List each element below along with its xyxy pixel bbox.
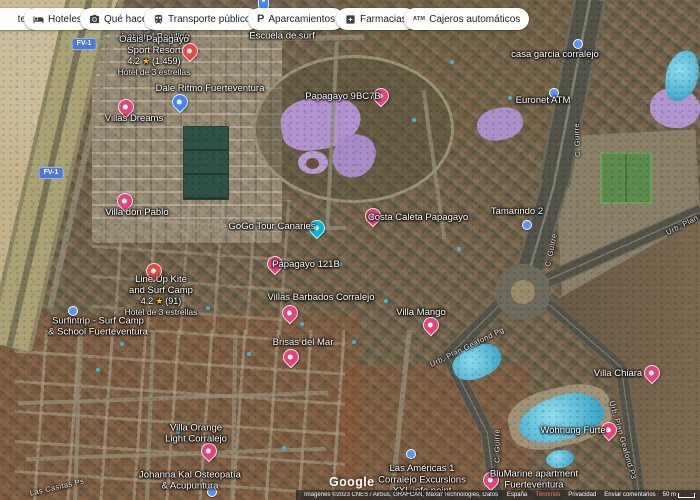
poi-name-line: Dale Ritmo Fuerteventura: [156, 84, 265, 95]
pharmacy-icon: [345, 14, 356, 25]
poi-name-line: casa garcia corralejo: [511, 50, 599, 61]
poi-name-line: Villa Orange: [165, 424, 227, 435]
footer-links: EspañaTérminosPrivacidadEnviar comentari…: [507, 492, 656, 498]
chip-label: Transporte público: [168, 14, 250, 25]
poi-label-villa-orange[interactable]: Villa OrangeLight Corralejo: [165, 424, 227, 445]
poi-name-line: Corralejo Excursions: [378, 476, 466, 487]
atm-icon: ATM: [413, 16, 425, 22]
footer-link-2[interactable]: Privacidad: [568, 492, 596, 498]
poi-pin-villas-barbados[interactable]: [279, 302, 302, 325]
road-label-1: C. Guirre: [543, 232, 559, 267]
poi-label-villa-chiara[interactable]: Villa Chiara: [594, 369, 642, 380]
poi-name-line: Escuela de surf: [249, 31, 314, 42]
camera-icon: [89, 14, 100, 25]
map-attribution: Imágenes ©2023 CNES / Airbus, GRAFCAN, M…: [304, 492, 500, 498]
poi-label-euronet-atm[interactable]: Euronet ATM: [516, 96, 571, 107]
chip-label: Farmacias: [360, 14, 407, 25]
poi-rating: 4.2★(91): [125, 296, 198, 307]
poi-label-villa-mango[interactable]: Villa Mango: [396, 308, 445, 319]
poi-pin-las-americas-1[interactable]: [406, 449, 416, 459]
road-label-4: Urb. Plan Geafond P3: [607, 400, 638, 481]
poi-name-line: Light Corralejo: [165, 434, 227, 445]
poi-name-line: Line Up Kite: [125, 275, 198, 286]
poi-label-oasis-papagayo[interactable]: Oasis PapagayoSport Resort4.2★(1.459)Hot…: [118, 35, 191, 77]
poi-name-line: BluMarine apartment: [490, 470, 578, 481]
map-canvas[interactable]: FV-1FV-1C. GuirreC. GuirreC. GuirreUrb. …: [0, 0, 700, 500]
road-label-2: C. Guirre: [493, 429, 502, 463]
poi-pin-casa-garcia[interactable]: [573, 39, 583, 49]
poi-name-line: Papagayo 121B: [272, 260, 340, 271]
poi-label-villa-don-pablo[interactable]: Villa don Pablo: [105, 208, 168, 219]
poi-label-papagayo-121b[interactable]: Papagayo 121B: [272, 260, 340, 271]
poi-name-line: GoGo Tour Canaries: [229, 222, 316, 233]
poi-label-costa-caleta[interactable]: Costa Caleta Papagayo: [368, 213, 468, 224]
poi-pin-brisas-del-mar[interactable]: [280, 346, 303, 369]
poi-name-line: Villa don Pablo: [105, 208, 168, 219]
poi-label-line-up-kite[interactable]: Line Up Kiteand Surf Camp4.2★(91)Hotel d…: [125, 275, 198, 317]
poi-name-line: Papagayo 9BC7B: [305, 92, 381, 103]
star-icon: ★: [140, 56, 152, 66]
chip-label: Hoteles: [48, 14, 82, 25]
poi-name-line: Villas Barbados Corralejo: [267, 293, 374, 304]
poi-pin-tamarindo-2[interactable]: [522, 220, 532, 230]
map-scale: 50 m: [663, 492, 695, 498]
attribution-bar: Imágenes ©2023 CNES / Airbus, GRAFCAN, M…: [296, 490, 700, 500]
poi-pin-surfintrip[interactable]: [68, 306, 78, 316]
poi-name-line: Costa Caleta Papagayo: [368, 213, 468, 224]
poi-label-dale-ritmo[interactable]: Dale Ritmo Fuerteventura: [156, 84, 265, 95]
road-label-0: C. Guirre: [572, 123, 583, 157]
poi-label-casa-garcia[interactable]: casa garcia corralejo: [511, 50, 599, 61]
poi-name-line: Villas Dreams: [105, 114, 163, 125]
poi-name-line: & School Fuerteventura: [48, 327, 148, 338]
route-shield-fv1: FV-1: [39, 167, 64, 179]
poi-name-line: Wohnung Fürte: [540, 426, 605, 437]
map-labels-layer: FV-1FV-1C. GuirreC. GuirreC. GuirreUrb. …: [0, 0, 700, 500]
poi-label-villas-dreams[interactable]: Villas Dreams: [105, 114, 163, 125]
chip-aparcamientos[interactable]: PAparcamientos: [248, 8, 344, 30]
chip-cajeros-automaticos[interactable]: ATMCajeros automáticos: [404, 8, 529, 30]
poi-label-blumarine[interactable]: BluMarine apartmentFuerteventura: [490, 470, 578, 491]
poi-name-line: Euronet ATM: [516, 96, 571, 107]
poi-label-surfintrip[interactable]: Surfintrip - Surf Camp& School Fuerteven…: [48, 317, 148, 338]
scale-label: 50 m: [663, 492, 676, 498]
footer-link-0[interactable]: España: [507, 492, 527, 498]
route-shield-fv1: FV-1: [72, 38, 97, 50]
poi-label-las-americas-1[interactable]: Las Américas 1: [390, 464, 455, 475]
poi-label-papagayo-9bc7b[interactable]: Papagayo 9BC7B: [305, 92, 381, 103]
road-label-6: Las Casitas Ps: [29, 476, 85, 497]
bed-icon: [33, 14, 44, 25]
poi-name-line: Brisas del Mar: [273, 338, 334, 349]
chip-transporte-publico[interactable]: Transporte público: [144, 8, 259, 30]
poi-pin-villa-chiara[interactable]: [641, 362, 664, 385]
poi-label-wohnung-fuerte[interactable]: Wohnung Fürte: [540, 426, 605, 437]
poi-rating: 4.2★(1.459): [118, 56, 191, 67]
star-icon: ★: [153, 296, 165, 306]
poi-name-line: Johanna Kal Osteopatía: [139, 471, 241, 482]
poi-label-gogo-tour[interactable]: GoGo Tour Canaries: [229, 222, 316, 233]
poi-label-tamarindo-2[interactable]: Tamarindo 2: [491, 207, 543, 218]
scale-bar: [678, 493, 695, 498]
poi-category: Hotel de 3 estrellas: [118, 67, 191, 78]
poi-name-line: Surfintrip - Surf Camp: [48, 317, 148, 328]
poi-name-line: Sport Resort: [118, 46, 191, 57]
poi-label-brisas-del-mar[interactable]: Brisas del Mar: [273, 338, 334, 349]
chip-label: Aparcamientos: [268, 14, 335, 25]
poi-name-line: Oasis Papagayo: [118, 35, 191, 46]
transit-icon: [153, 14, 164, 25]
parking-icon: P: [257, 13, 264, 25]
poi-name-line: Fuerteventura: [490, 480, 578, 491]
google-logo[interactable]: Google: [329, 475, 374, 489]
poi-name-line: Villa Chiara: [594, 369, 642, 380]
poi-name-line: and Surf Camp: [125, 286, 198, 297]
poi-name-line: Tamarindo 2: [491, 207, 543, 218]
chip-label: Cajeros automáticos: [429, 14, 520, 25]
poi-label-johanna-kal[interactable]: Johanna Kal Osteopatía& Acupuntura: [139, 471, 241, 492]
road-label-5: Urb. Plan Ge: [665, 207, 700, 237]
poi-name-line: Villa Mango: [396, 308, 445, 319]
poi-label-villas-barbados[interactable]: Villas Barbados Corralejo: [267, 293, 374, 304]
road-label-3: Urb. Plan Geafond Pg: [428, 325, 505, 369]
footer-link-3[interactable]: Enviar comentarios: [604, 492, 655, 498]
poi-name-line: Las Américas 1: [390, 464, 455, 475]
footer-link-1[interactable]: Términos: [535, 492, 560, 498]
poi-name-line: & Acupuntura: [139, 481, 241, 492]
